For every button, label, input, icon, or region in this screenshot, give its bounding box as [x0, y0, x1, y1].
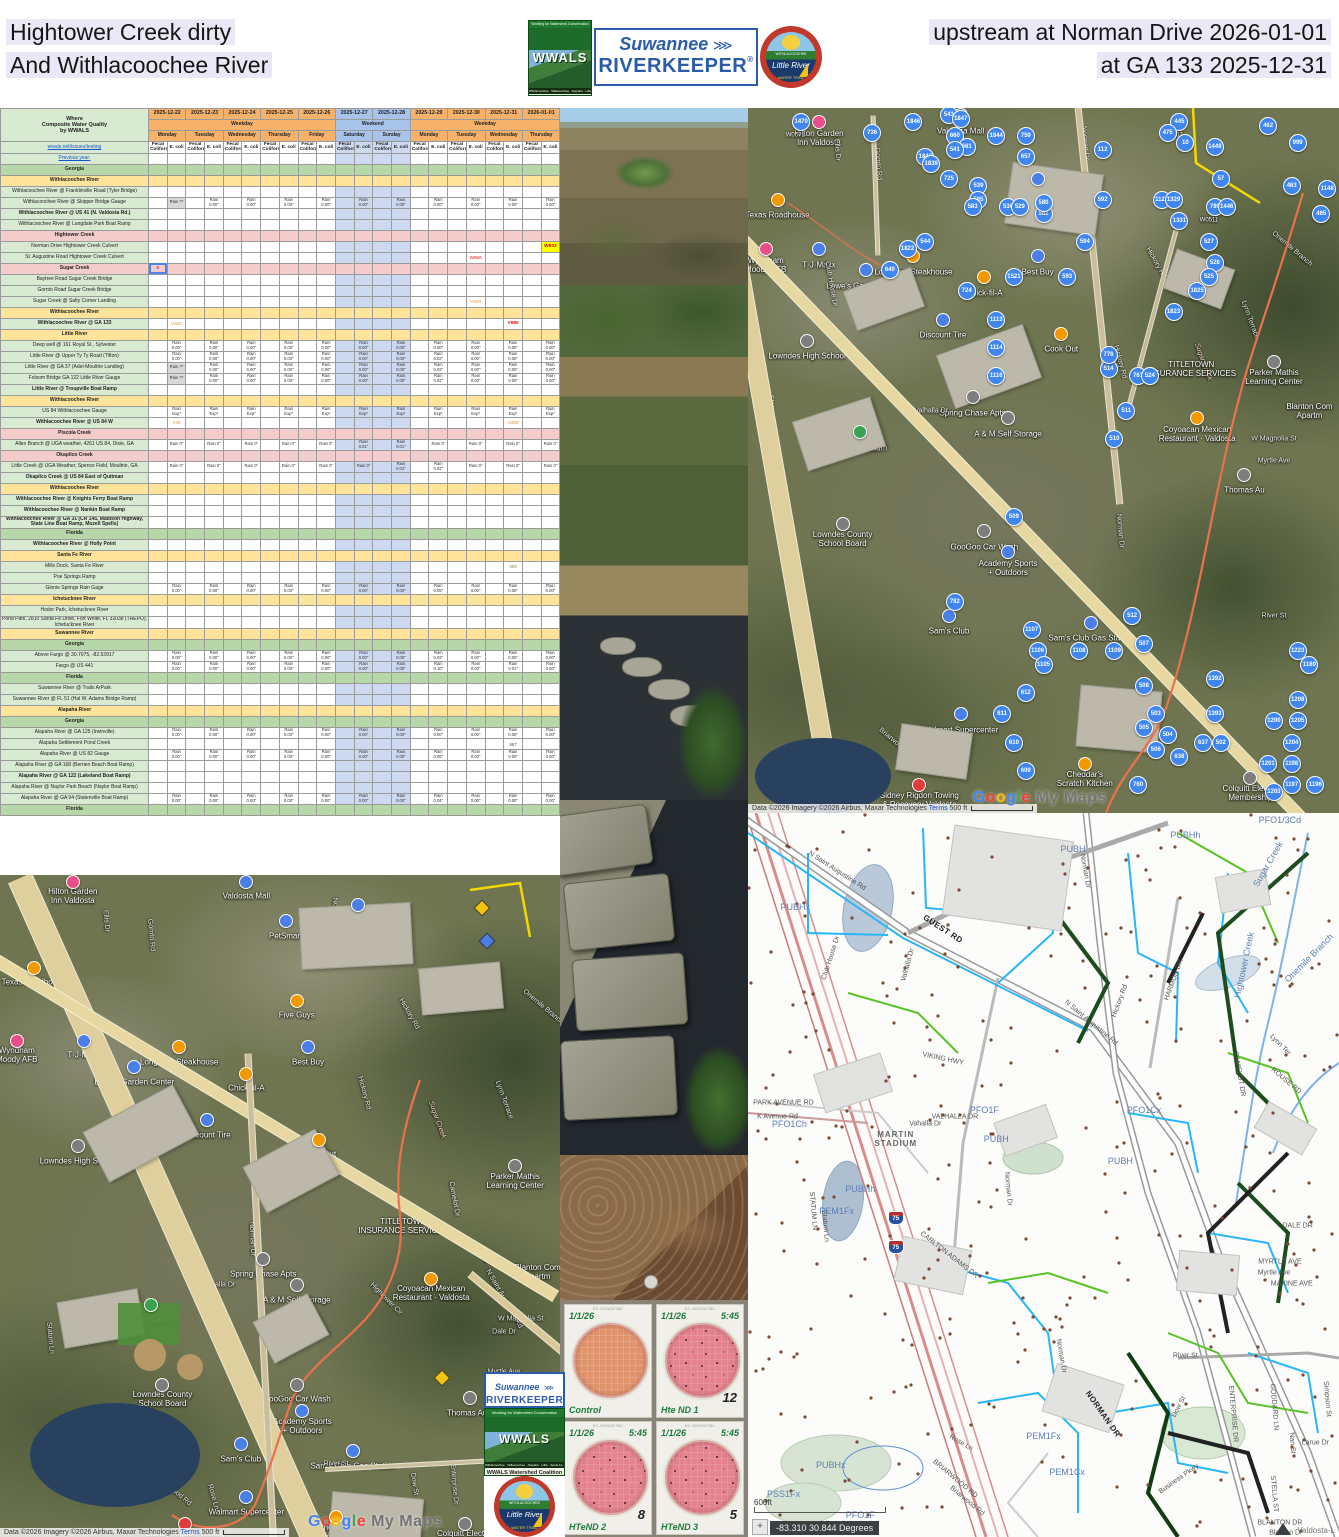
data-cell[interactable] — [410, 450, 429, 461]
data-cell[interactable] — [448, 528, 467, 539]
data-cell[interactable] — [317, 505, 336, 516]
data-cell[interactable]: Rain 0.00" — [279, 583, 298, 594]
data-cell[interactable] — [466, 450, 485, 461]
data-cell[interactable]: Rain 0.00" — [167, 728, 186, 739]
data-cell[interactable] — [223, 550, 242, 561]
data-cell[interactable] — [223, 307, 242, 318]
data-cell[interactable] — [335, 340, 354, 351]
data-cell[interactable] — [429, 594, 448, 605]
data-cell[interactable] — [261, 516, 280, 528]
poi-icon[interactable] — [77, 1034, 91, 1048]
data-cell[interactable] — [354, 594, 373, 605]
data-cell[interactable] — [298, 494, 317, 505]
data-cell[interactable] — [279, 528, 298, 539]
poi-icon[interactable] — [301, 1040, 315, 1054]
data-cell[interactable] — [279, 673, 298, 684]
data-cell[interactable]: Rain 0.04" — [429, 794, 448, 805]
data-cell[interactable] — [298, 739, 317, 750]
data-cell[interactable] — [373, 472, 392, 483]
data-cell[interactable] — [205, 208, 224, 219]
data-cell[interactable] — [242, 561, 261, 572]
map-marker[interactable]: 509 — [1005, 508, 1023, 526]
data-cell[interactable] — [410, 728, 429, 739]
data-cell[interactable] — [448, 483, 467, 494]
data-cell[interactable] — [298, 230, 317, 241]
data-cell[interactable] — [466, 417, 485, 428]
poi-icon[interactable] — [463, 1391, 477, 1405]
data-cell[interactable]: Rain 0.00" — [279, 662, 298, 673]
data-cell[interactable] — [504, 153, 523, 164]
data-cell[interactable] — [279, 274, 298, 285]
data-cell[interactable] — [392, 483, 411, 494]
data-cell[interactable] — [186, 186, 205, 197]
poi-icon[interactable] — [1001, 545, 1015, 559]
data-cell[interactable] — [317, 640, 336, 651]
data-cell[interactable] — [242, 706, 261, 717]
data-cell[interactable] — [242, 528, 261, 539]
data-cell[interactable] — [541, 594, 560, 605]
data-cell[interactable] — [317, 572, 336, 583]
data-cell[interactable] — [522, 153, 541, 164]
data-cell[interactable] — [410, 505, 429, 516]
data-cell[interactable] — [242, 175, 261, 186]
data-cell[interactable] — [448, 594, 467, 605]
data-cell[interactable] — [279, 605, 298, 616]
map-marker[interactable]: 637 — [1194, 734, 1212, 752]
data-cell[interactable] — [242, 153, 261, 164]
map-marker[interactable]: 527 — [1200, 233, 1218, 251]
data-cell[interactable] — [354, 516, 373, 528]
poi-icon[interactable] — [290, 1378, 304, 1392]
data-cell[interactable] — [298, 285, 317, 296]
data-cell[interactable] — [279, 695, 298, 706]
data-cell[interactable] — [223, 373, 242, 384]
data-cell[interactable] — [298, 483, 317, 494]
data-cell[interactable] — [186, 651, 205, 662]
data-cell[interactable]: Rain 0.00" — [167, 583, 186, 594]
data-cell[interactable] — [410, 384, 429, 395]
data-cell[interactable] — [410, 550, 429, 561]
map-marker[interactable]: 1331 — [1170, 212, 1188, 230]
data-cell[interactable] — [485, 805, 504, 816]
data-cell[interactable] — [354, 329, 373, 340]
data-cell[interactable]: Rain 0.00" — [354, 351, 373, 362]
data-cell[interactable] — [279, 505, 298, 516]
data-cell[interactable] — [541, 153, 560, 164]
data-cell[interactable] — [298, 351, 317, 362]
data-cell[interactable]: Rain 0.00" — [279, 373, 298, 384]
data-cell[interactable] — [522, 550, 541, 561]
data-cell[interactable] — [186, 539, 205, 550]
data-cell[interactable] — [317, 186, 336, 197]
data-cell[interactable] — [261, 673, 280, 684]
data-cell[interactable] — [261, 164, 280, 175]
data-cell[interactable] — [448, 706, 467, 717]
data-cell[interactable] — [149, 505, 168, 516]
map-marker[interactable]: 112 — [1094, 141, 1112, 159]
poi-icon[interactable] — [239, 1067, 253, 1081]
poi-icon[interactable] — [10, 1034, 24, 1048]
data-cell[interactable] — [392, 616, 411, 628]
satellite-map-testing-sites[interactable]: Data ©2026 Imagery ©2026 Airbus, Maxar T… — [748, 108, 1339, 813]
data-cell[interactable] — [205, 483, 224, 494]
terms-link[interactable]: Terms — [181, 1529, 200, 1536]
data-cell[interactable]: Rain 0.00" — [392, 583, 411, 594]
map-marker[interactable]: 609 — [1017, 762, 1035, 780]
data-cell[interactable]: Rain Exp* — [205, 406, 224, 417]
data-cell[interactable] — [485, 673, 504, 684]
data-cell[interactable]: Rain 0" — [466, 461, 485, 472]
data-cell[interactable] — [392, 186, 411, 197]
data-cell[interactable] — [279, 219, 298, 230]
data-cell[interactable]: Rain 0.00" — [205, 794, 224, 805]
data-cell[interactable] — [279, 572, 298, 583]
data-cell[interactable] — [223, 274, 242, 285]
data-cell[interactable] — [298, 153, 317, 164]
data-cell[interactable] — [410, 673, 429, 684]
data-cell[interactable] — [410, 651, 429, 662]
data-cell[interactable] — [317, 417, 336, 428]
data-cell[interactable] — [335, 483, 354, 494]
data-cell[interactable] — [279, 175, 298, 186]
data-cell[interactable] — [448, 494, 467, 505]
data-cell[interactable] — [522, 739, 541, 750]
data-cell[interactable] — [466, 219, 485, 230]
data-cell[interactable] — [261, 351, 280, 362]
poi-icon[interactable] — [295, 1404, 309, 1418]
data-cell[interactable] — [504, 717, 523, 728]
data-cell[interactable] — [466, 483, 485, 494]
data-cell[interactable] — [429, 673, 448, 684]
data-cell[interactable] — [167, 695, 186, 706]
data-cell[interactable] — [541, 384, 560, 395]
data-cell[interactable]: Rain 0.00" — [317, 750, 336, 761]
data-cell[interactable]: Rain 0.00" — [354, 728, 373, 739]
data-cell[interactable] — [335, 805, 354, 816]
poi-icon[interactable] — [200, 1113, 214, 1127]
data-cell[interactable] — [485, 340, 504, 351]
data-cell[interactable] — [504, 550, 523, 561]
data-cell[interactable] — [261, 230, 280, 241]
data-cell[interactable] — [392, 274, 411, 285]
data-cell[interactable] — [167, 505, 186, 516]
data-cell[interactable] — [298, 695, 317, 706]
data-cell[interactable] — [335, 616, 354, 628]
data-cell[interactable] — [354, 450, 373, 461]
data-cell[interactable] — [373, 362, 392, 373]
data-cell[interactable] — [205, 230, 224, 241]
data-cell[interactable] — [167, 640, 186, 651]
data-cell[interactable] — [354, 706, 373, 717]
data-cell[interactable] — [205, 616, 224, 628]
data-cell[interactable] — [261, 651, 280, 662]
data-cell[interactable] — [261, 285, 280, 296]
data-cell[interactable]: 6 — [149, 263, 168, 274]
data-cell[interactable] — [541, 318, 560, 329]
data-cell[interactable]: Rain 0.00" — [392, 351, 411, 362]
data-cell[interactable] — [522, 505, 541, 516]
data-cell[interactable] — [410, 461, 429, 472]
data-cell[interactable] — [354, 772, 373, 783]
data-cell[interactable] — [466, 307, 485, 318]
data-cell[interactable] — [335, 230, 354, 241]
data-cell[interactable] — [242, 285, 261, 296]
data-cell[interactable] — [504, 783, 523, 794]
data-cell[interactable]: V320 — [167, 318, 186, 329]
data-cell[interactable] — [504, 629, 523, 640]
data-cell[interactable] — [205, 384, 224, 395]
data-cell[interactable] — [466, 186, 485, 197]
data-cell[interactable]: Rain 0.00" — [279, 750, 298, 761]
data-cell[interactable] — [298, 761, 317, 772]
data-cell[interactable] — [335, 772, 354, 783]
data-cell[interactable] — [298, 219, 317, 230]
data-cell[interactable] — [429, 761, 448, 772]
data-cell[interactable] — [448, 761, 467, 772]
data-cell[interactable] — [541, 417, 560, 428]
data-cell[interactable] — [485, 362, 504, 373]
data-cell[interactable]: Rain 0.00" — [242, 651, 261, 662]
data-cell[interactable] — [485, 539, 504, 550]
data-cell[interactable] — [223, 153, 242, 164]
data-cell[interactable] — [373, 717, 392, 728]
map-marker[interactable]: 583 — [964, 198, 982, 216]
data-cell[interactable] — [335, 662, 354, 673]
data-cell[interactable]: Rain 0.00" — [429, 197, 448, 208]
data-cell[interactable] — [242, 472, 261, 483]
data-cell[interactable] — [223, 794, 242, 805]
data-cell[interactable] — [448, 197, 467, 208]
data-cell[interactable]: Rain 0.00" — [242, 362, 261, 373]
data-cell[interactable] — [317, 219, 336, 230]
data-cell[interactable] — [317, 175, 336, 186]
data-cell[interactable] — [485, 307, 504, 318]
data-cell[interactable] — [335, 572, 354, 583]
data-cell[interactable] — [335, 761, 354, 772]
data-cell[interactable] — [317, 629, 336, 640]
data-cell[interactable] — [429, 739, 448, 750]
data-cell[interactable] — [279, 307, 298, 318]
data-cell[interactable] — [298, 263, 317, 274]
data-cell[interactable]: Rain 0.00" — [242, 728, 261, 739]
data-cell[interactable] — [242, 384, 261, 395]
data-cell[interactable] — [373, 450, 392, 461]
data-cell[interactable] — [541, 550, 560, 561]
map-marker[interactable]: 594 — [1076, 233, 1094, 251]
data-cell[interactable] — [504, 274, 523, 285]
map-marker[interactable]: 475 — [1159, 124, 1177, 142]
data-cell[interactable] — [448, 186, 467, 197]
data-cell[interactable] — [354, 673, 373, 684]
data-cell[interactable] — [448, 728, 467, 739]
data-cell[interactable]: Rain 0.00" — [167, 340, 186, 351]
data-cell[interactable] — [317, 528, 336, 539]
data-cell[interactable] — [410, 750, 429, 761]
data-cell[interactable] — [373, 550, 392, 561]
data-cell[interactable] — [373, 783, 392, 794]
poi-icon[interactable] — [239, 1490, 253, 1504]
data-cell[interactable] — [373, 153, 392, 164]
data-cell[interactable] — [261, 241, 280, 252]
data-cell[interactable] — [466, 285, 485, 296]
data-cell[interactable] — [261, 572, 280, 583]
data-cell[interactable] — [541, 706, 560, 717]
data-cell[interactable] — [167, 472, 186, 483]
data-cell[interactable] — [335, 274, 354, 285]
data-cell[interactable] — [279, 761, 298, 772]
data-cell[interactable] — [522, 783, 541, 794]
data-cell[interactable]: Rain 0.00" — [541, 340, 560, 351]
map-marker[interactable]: 736 — [863, 124, 881, 142]
data-cell[interactable] — [167, 164, 186, 175]
data-cell[interactable]: Rain 0" — [354, 461, 373, 472]
data-cell[interactable] — [354, 561, 373, 572]
data-cell[interactable]: Rain 0.00" — [541, 373, 560, 384]
data-cell[interactable] — [448, 340, 467, 351]
data-cell[interactable] — [504, 684, 523, 695]
data-cell[interactable]: Rain 0.00" — [279, 728, 298, 739]
map-marker[interactable]: 1521 — [1005, 268, 1023, 286]
data-cell[interactable] — [466, 164, 485, 175]
data-cell[interactable] — [466, 772, 485, 783]
data-cell[interactable] — [410, 472, 429, 483]
data-cell[interactable] — [298, 516, 317, 528]
data-cell[interactable] — [149, 805, 168, 816]
data-cell[interactable]: Rain 0" — [504, 439, 523, 450]
data-cell[interactable] — [429, 605, 448, 616]
data-cell[interactable]: Rain ?* — [167, 197, 186, 208]
data-cell[interactable] — [298, 373, 317, 384]
data-cell[interactable] — [261, 395, 280, 406]
data-cell[interactable] — [335, 750, 354, 761]
previous-year-link[interactable]: Previous year: — [1, 153, 149, 164]
data-cell[interactable]: Rain 0" — [167, 439, 186, 450]
data-cell[interactable]: Rain Exp* — [504, 406, 523, 417]
data-cell[interactable] — [335, 561, 354, 572]
map-marker[interactable]: 1189 — [1300, 656, 1318, 674]
data-cell[interactable] — [279, 483, 298, 494]
data-cell[interactable] — [410, 662, 429, 673]
data-cell[interactable] — [485, 717, 504, 728]
data-cell[interactable] — [242, 428, 261, 439]
map-marker[interactable]: 724 — [958, 282, 976, 300]
data-cell[interactable] — [223, 528, 242, 539]
data-cell[interactable] — [167, 241, 186, 252]
data-cell[interactable]: Rain 0.00" — [205, 373, 224, 384]
data-cell[interactable] — [354, 219, 373, 230]
data-cell[interactable]: Rain Exp* — [167, 406, 186, 417]
data-cell[interactable] — [429, 384, 448, 395]
data-cell[interactable] — [541, 428, 560, 439]
data-cell[interactable] — [466, 175, 485, 186]
data-cell[interactable] — [466, 494, 485, 505]
data-cell[interactable] — [485, 483, 504, 494]
data-cell[interactable] — [149, 717, 168, 728]
data-cell[interactable]: Rain 0.00" — [354, 373, 373, 384]
data-cell[interactable] — [242, 329, 261, 340]
data-cell[interactable]: Rain 0.00" — [279, 794, 298, 805]
data-cell[interactable] — [279, 285, 298, 296]
data-cell[interactable] — [410, 805, 429, 816]
data-cell[interactable] — [167, 329, 186, 340]
poi-icon[interactable] — [1054, 327, 1068, 341]
data-cell[interactable] — [392, 230, 411, 241]
data-cell[interactable]: Rain 0.00" — [392, 340, 411, 351]
data-cell[interactable] — [373, 197, 392, 208]
data-cell[interactable] — [504, 241, 523, 252]
data-cell[interactable] — [392, 739, 411, 750]
data-cell[interactable] — [186, 274, 205, 285]
data-cell[interactable] — [448, 539, 467, 550]
data-cell[interactable] — [392, 783, 411, 794]
map-marker[interactable]: 593 — [1058, 268, 1076, 286]
data-cell[interactable] — [448, 373, 467, 384]
data-cell[interactable] — [541, 208, 560, 219]
data-cell[interactable] — [541, 772, 560, 783]
data-cell[interactable] — [373, 739, 392, 750]
data-cell[interactable]: Rain 0.00" — [167, 651, 186, 662]
data-cell[interactable] — [373, 561, 392, 572]
data-cell[interactable] — [261, 616, 280, 628]
data-cell[interactable] — [392, 594, 411, 605]
data-cell[interactable] — [429, 318, 448, 329]
data-cell[interactable] — [279, 230, 298, 241]
data-cell[interactable] — [242, 616, 261, 628]
data-cell[interactable] — [392, 805, 411, 816]
data-cell[interactable] — [167, 296, 186, 307]
data-cell[interactable] — [485, 439, 504, 450]
data-cell[interactable] — [522, 805, 541, 816]
data-cell[interactable] — [373, 406, 392, 417]
data-cell[interactable] — [223, 805, 242, 816]
data-cell[interactable]: V200 — [466, 296, 485, 307]
data-cell[interactable] — [317, 739, 336, 750]
data-cell[interactable]: Rain 0.00" — [167, 750, 186, 761]
data-cell[interactable] — [205, 164, 224, 175]
data-cell[interactable] — [205, 516, 224, 528]
data-cell[interactable] — [466, 428, 485, 439]
data-cell[interactable] — [466, 616, 485, 628]
data-cell[interactable] — [392, 318, 411, 329]
data-cell[interactable] — [522, 263, 541, 274]
data-cell[interactable] — [354, 684, 373, 695]
data-cell[interactable] — [149, 417, 168, 428]
data-cell[interactable] — [261, 662, 280, 673]
data-cell[interactable] — [448, 164, 467, 175]
data-cell[interactable] — [242, 695, 261, 706]
data-cell[interactable] — [410, 761, 429, 772]
data-cell[interactable] — [541, 516, 560, 528]
data-cell[interactable]: Rain 0.00" — [242, 197, 261, 208]
data-cell[interactable] — [149, 197, 168, 208]
data-cell[interactable] — [429, 252, 448, 263]
data-cell[interactable] — [242, 208, 261, 219]
data-cell[interactable] — [205, 263, 224, 274]
map-marker[interactable]: 1105 — [1035, 656, 1053, 674]
data-cell[interactable]: Rain 0" — [541, 439, 560, 450]
data-cell[interactable] — [261, 461, 280, 472]
data-cell[interactable] — [261, 472, 280, 483]
data-cell[interactable] — [167, 230, 186, 241]
data-cell[interactable] — [410, 528, 429, 539]
poi-icon[interactable] — [1031, 172, 1045, 186]
data-cell[interactable] — [429, 230, 448, 241]
data-cell[interactable] — [149, 761, 168, 772]
data-cell[interactable] — [541, 274, 560, 285]
data-cell[interactable] — [205, 395, 224, 406]
data-cell[interactable] — [335, 505, 354, 516]
poi-icon[interactable] — [127, 1060, 141, 1074]
